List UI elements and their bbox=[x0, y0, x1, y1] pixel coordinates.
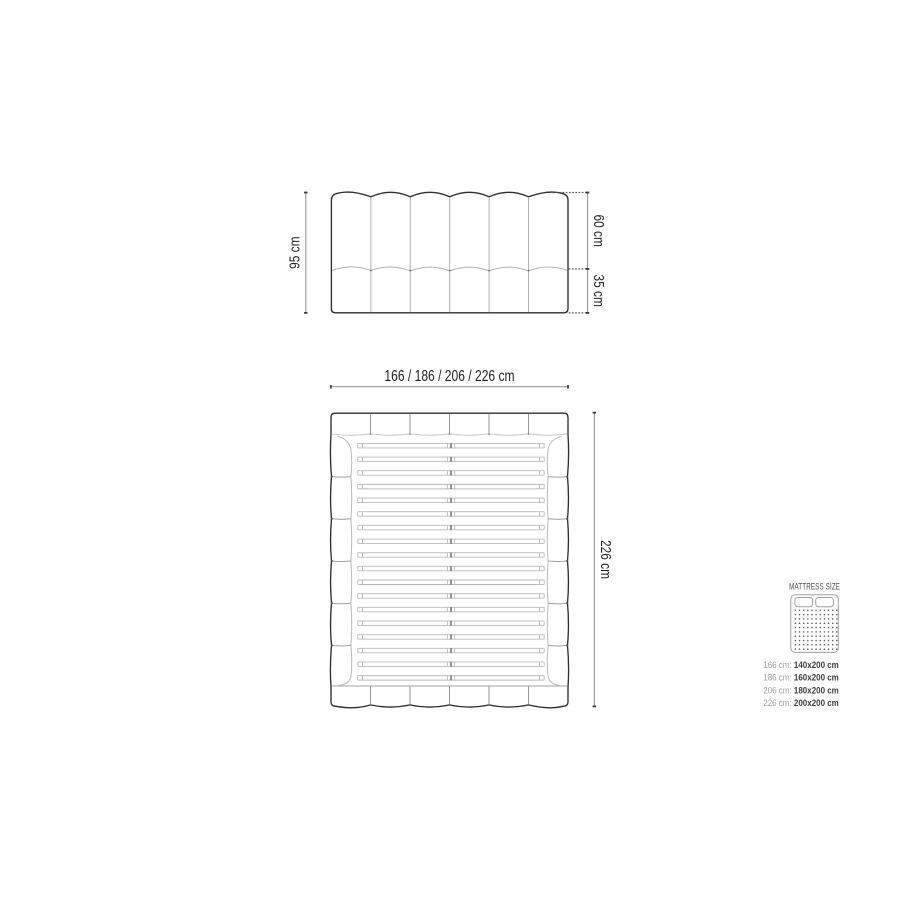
svg-text:95 cm: 95 cm bbox=[286, 237, 302, 269]
svg-text:MATTRESS SIZE: MATTRESS SIZE bbox=[789, 582, 840, 592]
svg-text:35 cm: 35 cm bbox=[591, 275, 607, 307]
svg-text:226 cm: 200x200 cm: 226 cm: 200x200 cm bbox=[763, 698, 839, 709]
svg-text:206 cm: 180x200 cm: 206 cm: 180x200 cm bbox=[763, 685, 839, 696]
svg-text:166 cm: 140x200 cm: 166 cm: 140x200 cm bbox=[763, 659, 839, 670]
svg-text:166 / 186 / 206 / 226 cm: 166 / 186 / 206 / 226 cm bbox=[384, 367, 514, 385]
svg-text:60 cm: 60 cm bbox=[591, 215, 607, 247]
svg-text:186 cm: 160x200 cm: 186 cm: 160x200 cm bbox=[763, 672, 839, 683]
svg-text:226 cm: 226 cm bbox=[598, 540, 614, 579]
